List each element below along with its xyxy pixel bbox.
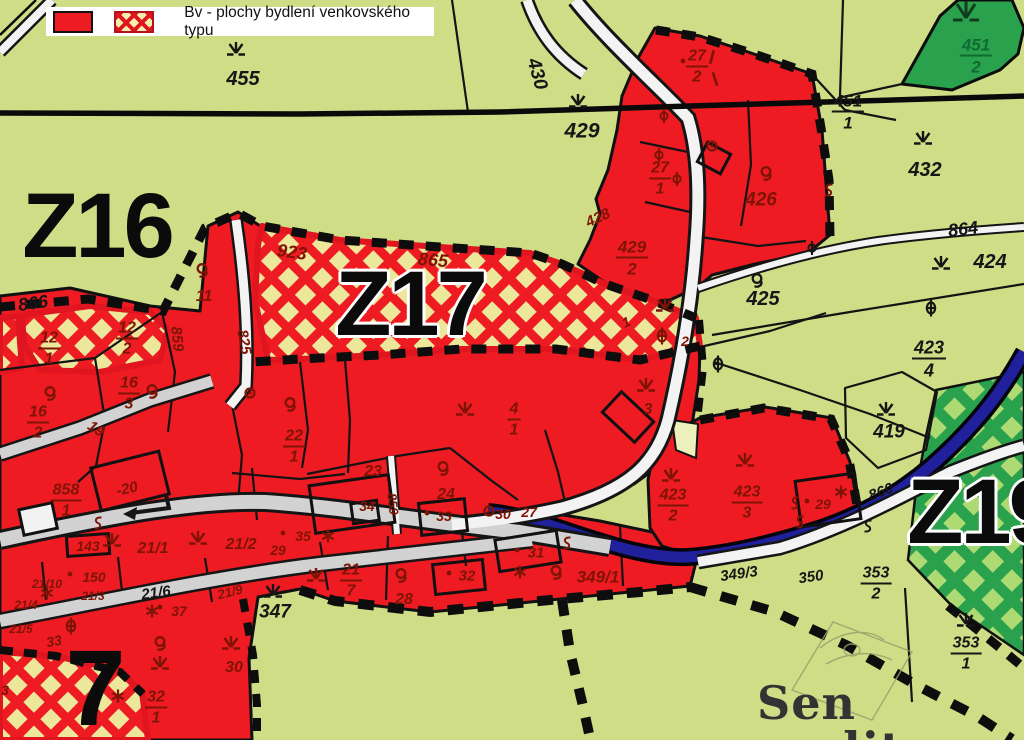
map-canvas: 4554294304328644244511451242542344194264… bbox=[0, 0, 1024, 740]
legend-solid-swatch bbox=[53, 11, 93, 33]
watermark: Sen reality bbox=[757, 680, 1024, 740]
map-base bbox=[0, 0, 1024, 740]
legend-label: Bv - plochy bydlení venkovského typu bbox=[184, 4, 434, 40]
legend-hatch-swatch bbox=[114, 11, 155, 33]
legend: Bv - plochy bydlení venkovského typu bbox=[46, 7, 434, 36]
